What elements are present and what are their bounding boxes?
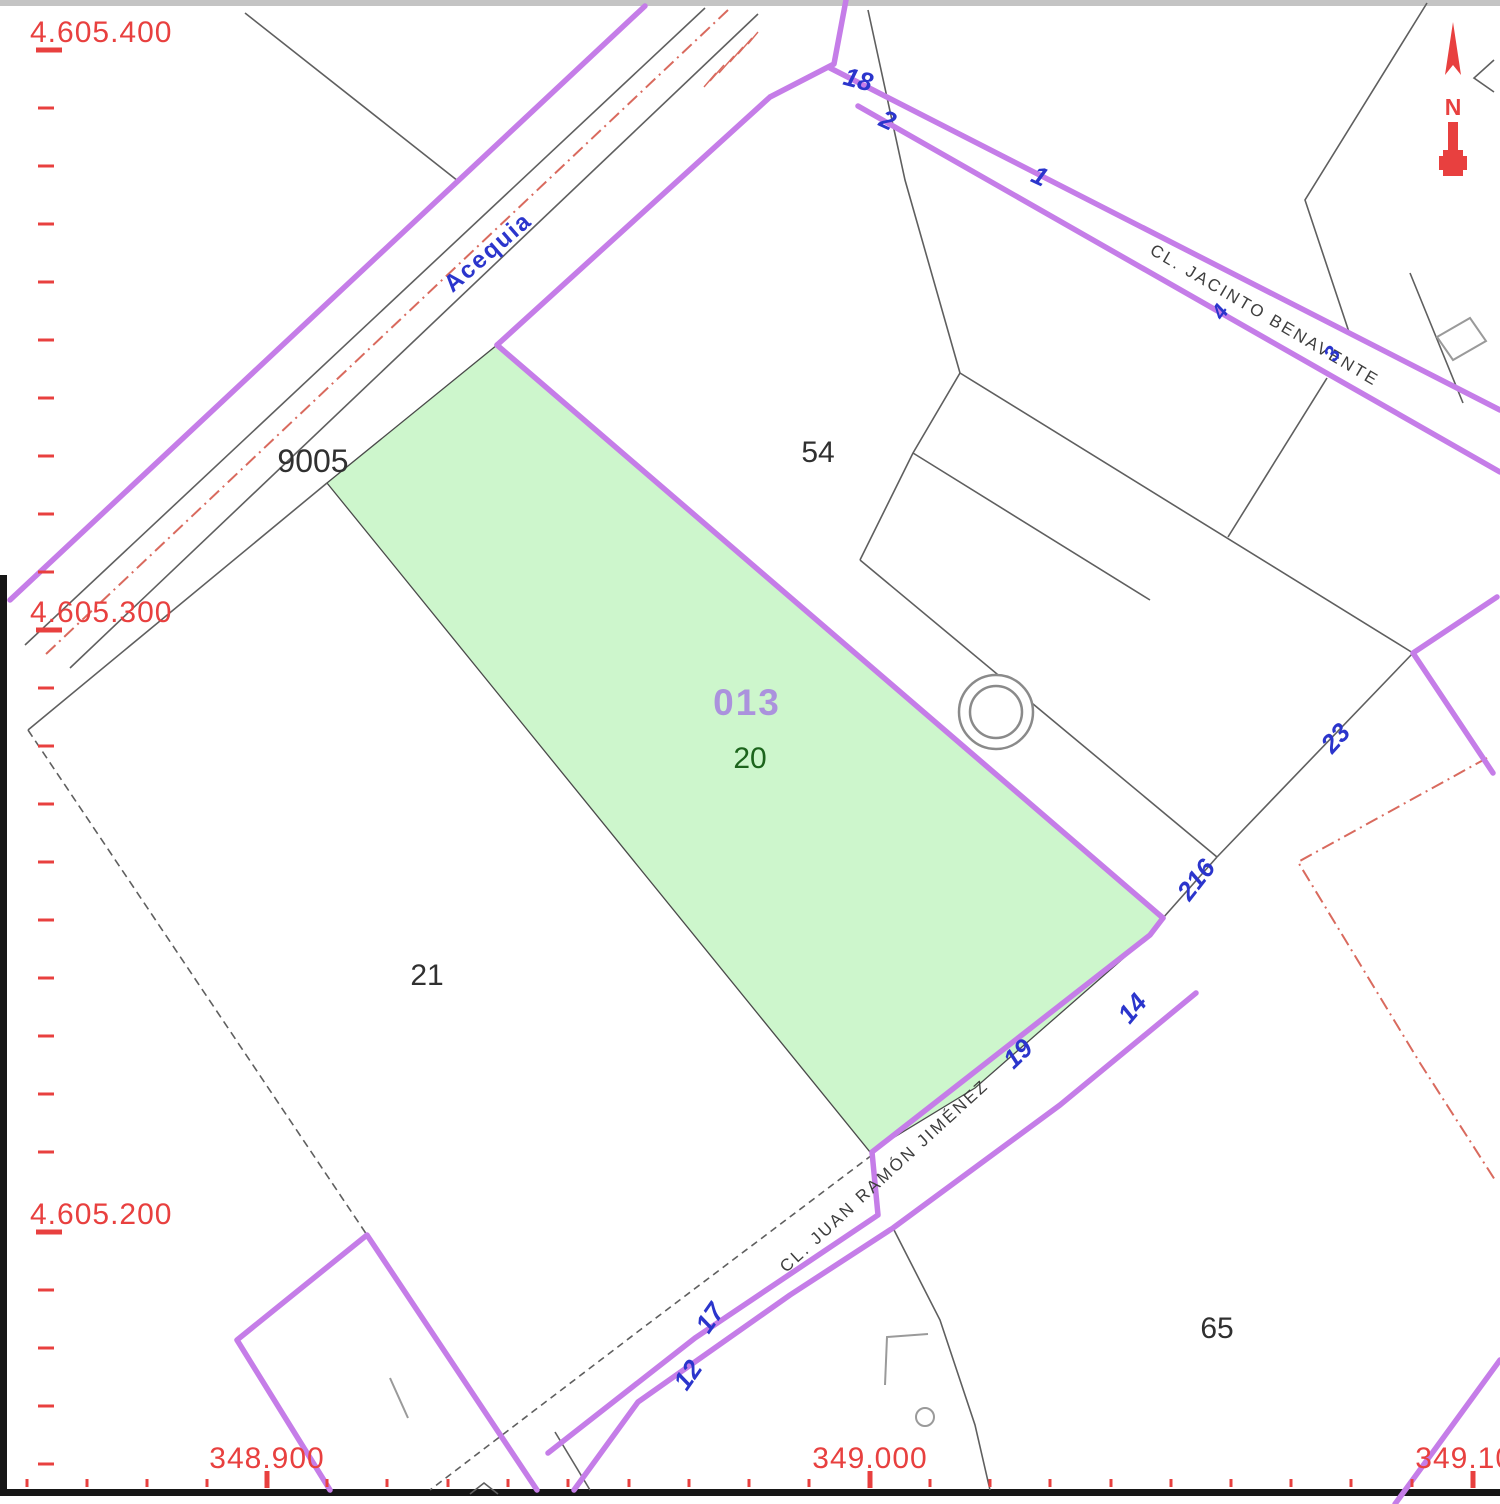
north-arrow-letter: N [1445, 94, 1462, 120]
east-street-fork [1413, 597, 1497, 773]
coord-label-y-200: 4.605.200 [30, 1198, 172, 1231]
parcel54-east-edge [960, 373, 1413, 653]
frame-bottom [0, 1489, 1500, 1496]
boundary-line [245, 13, 458, 181]
frame-left [0, 575, 7, 1495]
parcel-label-21: 21 [410, 959, 443, 992]
street23-axis [1217, 653, 1413, 857]
house-number-23: 23 [1314, 717, 1357, 760]
building-partial [885, 1334, 928, 1385]
house-number-1: 1 [1027, 159, 1053, 192]
frame-top [0, 0, 1500, 6]
cadastral-ref-013: 013 [713, 682, 781, 723]
street-crossing-line [1228, 378, 1327, 537]
parcel21-south-edge [28, 730, 367, 1235]
parcel54-west-edge [868, 10, 960, 373]
house-number-14: 14 [1111, 987, 1153, 1029]
well-symbol [959, 675, 1033, 749]
street-label-acequia: Acequia [439, 207, 538, 298]
north-arrow-shaft [1448, 122, 1458, 152]
parcel-label-54: 54 [801, 436, 834, 469]
road-west-border [497, 0, 846, 345]
cadastral-map-svg[interactable]: 4.605.400 4.605.300 4.605.200 348.900 34… [0, 0, 1500, 1504]
parcel-label-65: 65 [1200, 1312, 1233, 1345]
house-number-12: 12 [667, 1354, 708, 1395]
parcel54-corner [860, 373, 960, 560]
coord-label-x-9000: 349.000 [812, 1442, 927, 1475]
ne-chevron [1474, 60, 1494, 92]
building-mark [390, 1378, 408, 1418]
map-viewport[interactable]: 4.605.400 4.605.300 4.605.200 348.900 34… [0, 0, 1500, 1504]
parcel-label-9005: 9005 [277, 443, 348, 479]
street-label-jacinto-benavente: CL. JACINTO BENAVENTE [1147, 240, 1383, 390]
ne-parcel-line [1305, 3, 1427, 335]
north-arrow-fin-right [1463, 156, 1467, 170]
east-boundary-dashdot [1298, 758, 1495, 1180]
parcel54-subdivision [913, 453, 1150, 600]
small-circle-symbol [916, 1408, 934, 1426]
house-number-17: 17 [689, 1296, 731, 1338]
north-arrow-fin-left [1439, 156, 1443, 170]
coord-label-x-8900: 348.900 [209, 1442, 324, 1475]
house-number-18: 18 [840, 61, 876, 98]
coord-label-x-9100: 349.100 [1415, 1442, 1500, 1475]
north-arrow-spike [1445, 22, 1461, 75]
north-arrow: N [1439, 22, 1467, 176]
north-arrow-base [1443, 150, 1463, 176]
parcel-label-20: 20 [733, 742, 766, 775]
coord-label-y-400: 4.605.400 [30, 16, 172, 49]
street-jrj-axis [430, 1155, 872, 1490]
ruler-left [36, 50, 62, 1464]
jacinto-north-border [830, 68, 1500, 410]
coord-label-y-300: 4.605.300 [30, 596, 172, 629]
building-outline [1437, 318, 1486, 360]
jacinto-south-border [858, 106, 1500, 472]
